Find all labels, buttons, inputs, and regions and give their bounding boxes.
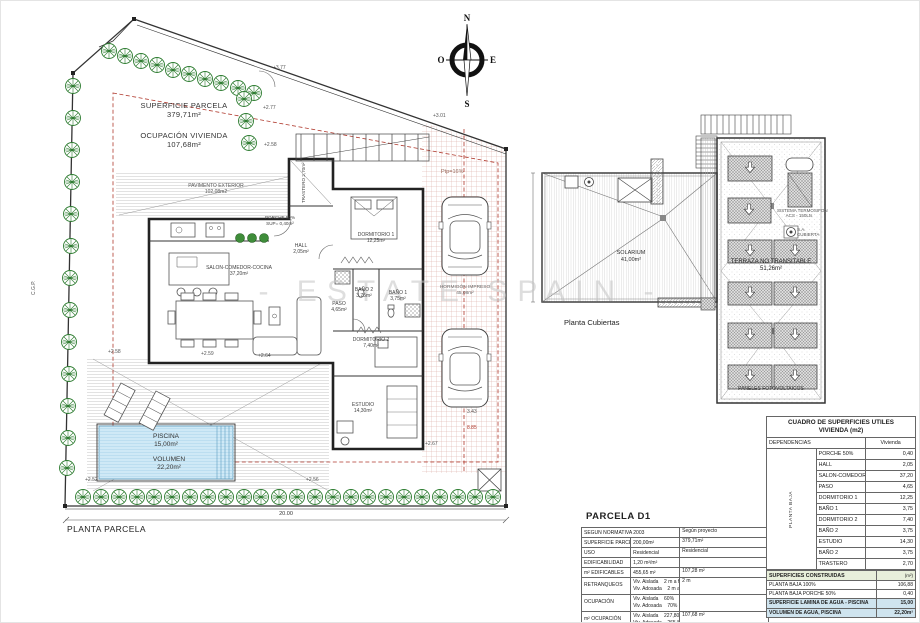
elevation-mark: +3.01 — [433, 113, 446, 119]
cell: PORCHE 50% — [816, 449, 866, 460]
agua-piscina-table: SUPERFICIE LAMINA DE AGUA - PISCINA15,00… — [766, 598, 916, 618]
elevation-mark: +2.58 — [264, 142, 277, 148]
room-label-porche: PORCHE 50%SUP= 0,40m² — [263, 215, 297, 226]
room-label-hall: HALL2,05m² — [287, 243, 315, 255]
cell: VOLUMEN DE AGUA, PISCINA — [767, 608, 877, 618]
cell: SUPERFICIE PARCELA — [582, 538, 631, 548]
cell: 7,40 — [866, 515, 916, 526]
elevation-mark: +2.67 — [425, 441, 438, 447]
dimension-line — [63, 517, 509, 523]
roof-access-stairs — [701, 115, 791, 134]
cell: 0,40 — [866, 449, 916, 460]
ocupacion-vivienda-label: OCUPACIÓN VIVIENDA107,68m² — [119, 131, 249, 149]
cell: 379,71m² — [680, 538, 769, 548]
cell: 2,70 — [866, 559, 916, 570]
architectural-sheet: N S O E — [0, 0, 920, 623]
pool-volume-label: VOLUMEN22,20m² — [134, 456, 204, 472]
cell: 2 m — [680, 578, 769, 595]
cell: BAÑO 1 — [816, 504, 866, 515]
cell: 455,65 m² — [631, 568, 680, 578]
superficies-utiles-table: CUADRO DE SUPERFICIES UTILESVIVIENDA (m2… — [766, 416, 916, 582]
elevation-mark: +3.77 — [273, 65, 286, 71]
cell: DORMITORIO 1 — [816, 493, 866, 504]
cell — [680, 595, 769, 612]
cell: 37,20 — [866, 471, 916, 482]
cell: 107,68 m² — [680, 612, 769, 623]
cell: DEPENDENCIAS — [767, 438, 866, 449]
cell: 3,75 — [866, 548, 916, 559]
cell: 15,00 — [877, 599, 916, 609]
cell: CUADRO DE SUPERFICIES UTILESVIVIENDA (m2… — [767, 417, 916, 438]
cell: 107,28 m² — [680, 568, 769, 578]
compass-o: O — [437, 55, 444, 65]
elevation-mark: +2.58 — [108, 349, 121, 355]
elevation-mark: +2.52 — [85, 477, 98, 483]
cell: m² EDIFICABLES — [582, 568, 631, 578]
room-label-bano1: BAÑO 13,75m² — [383, 290, 413, 302]
total-dimension: 20.00 — [271, 511, 301, 518]
dimension-mark: 3.43 — [467, 409, 477, 415]
cell: 4,65 — [866, 482, 916, 493]
room-label-salon: SALON-COMEDOR-COCINA37,20m² — [199, 265, 279, 277]
cell: HALL — [816, 460, 866, 471]
cell: Residencial — [631, 548, 680, 558]
cell: TRASTERO — [816, 559, 866, 570]
elevation-mark: +2.56 — [306, 477, 319, 483]
room-label-bano2: BAÑO 23,75m² — [349, 287, 379, 299]
cell: OCUPACIÓN — [582, 595, 631, 612]
compass-n: N — [464, 13, 471, 23]
driveway-material-label: HORMIGÓN IMPRESO45,08m² — [433, 285, 497, 297]
room-label-paso: PASO4,65m² — [327, 301, 351, 313]
room-label-dormitorio2: DORMITORIO 27,40m² — [341, 337, 401, 349]
cell: EDIFICABILIDAD — [582, 558, 631, 568]
cell — [680, 558, 769, 568]
ramp-slope-label: Ptp=16% — [441, 169, 463, 176]
cell: Residencial — [680, 548, 769, 558]
cell: SUPERFICIES CONSTRUIDAS — [767, 571, 877, 581]
cell: ESTUDIO — [816, 537, 866, 548]
parcela-table-title: PARCELA D1 — [586, 511, 651, 522]
terraza-label: TERRAZA NO TRANSITABLE51,26m² — [721, 259, 821, 273]
cell: BAÑO 2 — [816, 548, 866, 559]
car-icon — [439, 197, 491, 275]
utility-box — [478, 469, 501, 491]
cell: 3,75 — [866, 526, 916, 537]
cell: DORMITORIO 2 — [816, 515, 866, 526]
cell: Según proyecto — [680, 528, 769, 538]
elevation-mark: +2.59 — [201, 351, 214, 357]
cell: SALON-COMEDOR-COCINA — [816, 471, 866, 482]
solarium-label: SOLARIUM41,00m² — [601, 250, 661, 263]
cell: 22,20m² — [877, 608, 916, 618]
thermosiphon-icon — [786, 158, 813, 207]
room-label-dormitorio1: DORMITORIO 112,25m² — [346, 232, 406, 244]
cell: 2,05 — [866, 460, 916, 471]
acs-label: SISTEMA TERMOSIFONACS - 150Lts — [777, 208, 821, 219]
cell: 106,88 — [877, 581, 916, 590]
cell: Vivienda — [866, 438, 916, 449]
cell: 200,00m² — [631, 538, 680, 548]
compass-e: E — [490, 55, 496, 65]
cell: Viv. Aislada 227,80m²Viv. Adosada 265,80… — [631, 612, 680, 623]
room-label-estudio: ESTUDIO14,30m² — [341, 402, 385, 414]
compass-rose: N S O E — [436, 11, 498, 109]
parcela-table: SEGUN NORMATIVA 2003 Según proyecto SUPE… — [581, 527, 769, 623]
dimension-mark: 8.85 — [467, 425, 477, 431]
cell: SEGUN NORMATIVA 2003 — [582, 528, 680, 538]
cell: Viv. Aislada 2 m a fachada y lindesViv. … — [631, 578, 680, 595]
cgp-label: C.G.P. — [31, 273, 37, 303]
car-icon — [439, 329, 491, 407]
cell: Viv. Aislada 60%Viv. Adosada 70% — [631, 595, 680, 612]
roof-drain-icon — [784, 226, 798, 238]
roof-plan-title: Planta Cubiertas — [564, 318, 619, 327]
cell: (m²) — [877, 571, 916, 581]
site-plan-title: PLANTA PARCELA — [67, 524, 146, 534]
cell: 12,25 — [866, 493, 916, 504]
compass-s: S — [464, 99, 469, 109]
pavimento-exterior-label: PAVIMENTO EXTERIOR102,08m2 — [176, 183, 256, 195]
cell: 14,30 — [866, 537, 916, 548]
cell: PASO — [816, 482, 866, 493]
planter-icons — [236, 234, 269, 243]
superficie-parcela-label: SUPERFICIE PARCELA379,71m² — [119, 101, 249, 119]
cell: SUPERFICIE LAMINA DE AGUA - PISCINA — [767, 599, 877, 609]
cell: 3,75 — [866, 504, 916, 515]
pool-label: PISCINA15,00m² — [131, 433, 201, 449]
elevation-mark: +2.64 — [258, 353, 271, 359]
room-label-trastero: TRASTERO 2,70m² — [301, 167, 307, 203]
elevation-mark: +2.77 — [263, 105, 276, 111]
cell: m² OCUPACIÓN — [582, 612, 631, 623]
sa-cubierta-label: S.A.CUBIERTA — [797, 227, 827, 238]
cell: RETRANQUEOS — [582, 578, 631, 595]
cell: 1,20 m²/m² — [631, 558, 680, 568]
cell: PLANTA BAJA 100% — [767, 581, 877, 590]
floor-group-label: PLANTA BAJA — [767, 449, 817, 570]
paneles-label: PANELES FOTOVOLTAICOS — [721, 386, 821, 392]
cell: USO — [582, 548, 631, 558]
cell: BAÑO 2 — [816, 526, 866, 537]
